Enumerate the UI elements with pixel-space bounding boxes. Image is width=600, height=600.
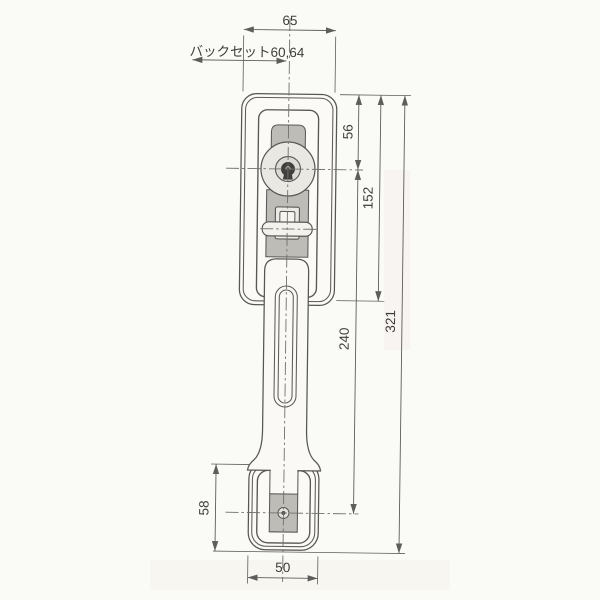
dim-label-152: 152 [360,187,375,210]
ext-line-65-right [335,37,336,93]
dim-label-58: 58 [196,500,211,515]
dim-label-backset: バックセット60,64 [189,44,304,61]
dim-label-321: 321 [383,310,398,333]
dim-label-240: 240 [337,327,352,350]
dim-line-58 [215,464,216,551]
dimension-cylinder-offset: 56 [340,95,359,170]
ext-line-bottom-common [213,551,405,554]
dim-line-65 [244,29,336,30]
door-handle-lockset-drawing: 65 バックセット60,64 56 240 152 321 [0,0,600,600]
dim-line-backset [192,60,286,61]
ext-line-152-bottom [336,301,384,302]
scanned-technical-drawing-page: 65 バックセット60,64 56 240 152 321 [0,0,600,600]
ext-line-58-top [211,464,250,465]
dimension-backset: バックセット60,64 [189,44,304,62]
ext-line-top-common [340,95,411,96]
scan-shadow [150,560,450,590]
dimension-handle-span: 240 [334,170,358,514]
dim-label-65: 65 [282,13,297,28]
drawing-group: 65 バックセット60,64 56 240 152 321 [183,12,412,586]
dimension-bottom-plate-height: 58 [196,464,250,552]
dim-label-50: 50 [275,560,290,575]
dim-label-56: 56 [340,124,355,139]
dim-line-240 [353,170,358,514]
dim-line-56 [358,95,359,170]
dim-line-152 [378,95,381,301]
